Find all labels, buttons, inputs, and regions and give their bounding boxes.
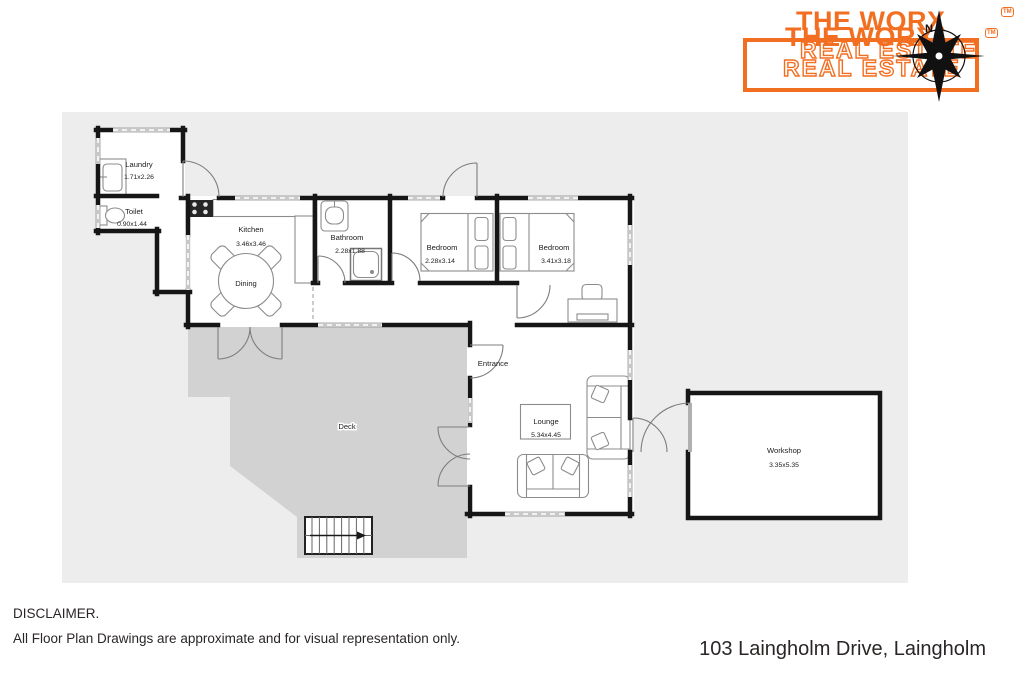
disclaimer-body: All Floor Plan Drawings are approximate … — [13, 631, 460, 646]
bedroom2-dims: 3.41x3.18 — [541, 258, 571, 265]
bedroom2-label: Bedroom — [539, 243, 570, 252]
bathroom-label: Bathroom — [331, 233, 364, 242]
laundry-dims: 1.71x2.26 — [124, 174, 154, 181]
sofa-icon — [518, 455, 589, 498]
lounge-label: Lounge — [533, 417, 558, 426]
bedroom1-label: Bedroom — [427, 243, 458, 252]
compass-north-label: N — [925, 23, 933, 35]
dining-label: Dining — [235, 279, 257, 288]
entrance-label: Entrance — [478, 359, 508, 368]
logo: THE WORX REAL ESTATE TM THE WORX REAL ES… — [740, 4, 1024, 108]
kitchen-counter-side — [295, 216, 313, 283]
workshop-label: Workshop — [767, 446, 801, 455]
bathroom-dims: 2.28x1.88 — [335, 248, 365, 255]
trademark-badge: TM — [1001, 7, 1014, 17]
toilet-dims: 0.90x1.44 — [117, 221, 147, 228]
disclaimer-title: DISCLAIMER. — [13, 606, 99, 621]
stairs-icon — [305, 517, 372, 554]
deck-label: Deck — [338, 422, 356, 431]
kitchen-counter — [213, 200, 313, 217]
sofa-icon — [587, 376, 630, 459]
property-address: 103 Laingholm Drive, Laingholm — [699, 638, 986, 661]
stove-icon — [188, 200, 213, 217]
kitchen-label: Kitchen — [238, 225, 263, 234]
toilet-label: Toilet — [125, 207, 144, 216]
lounge-dims: 5.34x4.45 — [531, 432, 561, 439]
bathroom-sink-icon — [321, 201, 348, 231]
bedroom1-dims: 2.28x3.14 — [425, 258, 455, 265]
laundry-label: Laundry — [125, 160, 153, 169]
workshop-dims: 3.35x5.35 — [769, 462, 799, 469]
laundry-tub-icon — [99, 159, 126, 196]
compass-icon: N — [892, 4, 992, 108]
kitchen-dims: 3.46x3.46 — [236, 241, 266, 248]
